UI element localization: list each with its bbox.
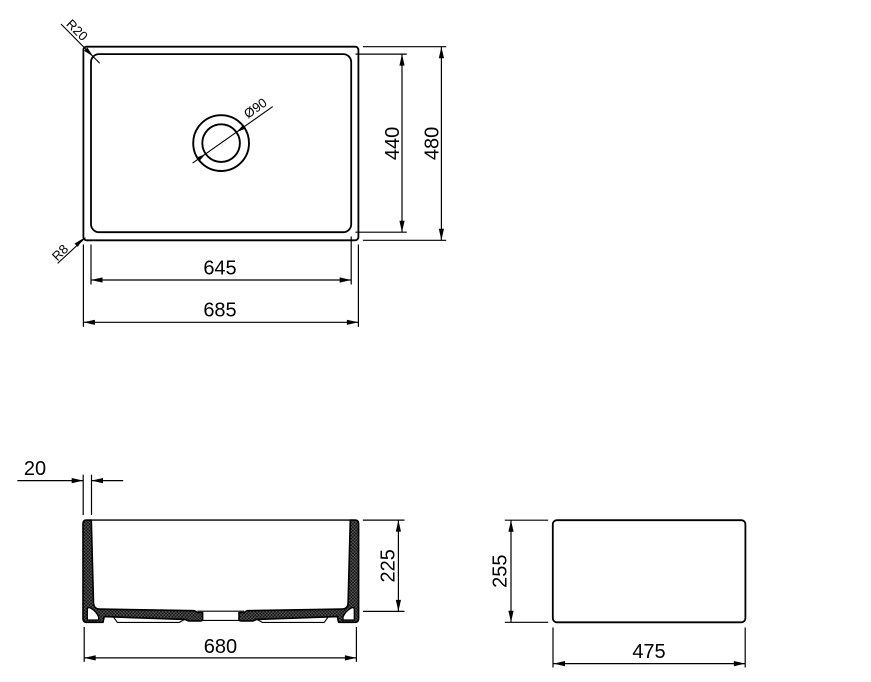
svg-text:685: 685	[203, 300, 236, 322]
svg-text:R20: R20	[63, 16, 90, 43]
svg-text:R8: R8	[49, 241, 71, 263]
svg-text:225: 225	[378, 549, 400, 582]
svg-text:475: 475	[632, 641, 665, 663]
svg-text:255: 255	[489, 555, 511, 588]
svg-text:480: 480	[422, 127, 444, 160]
svg-text:645: 645	[203, 257, 236, 279]
svg-text:20: 20	[24, 458, 46, 480]
svg-text:680: 680	[204, 636, 237, 658]
svg-text:440: 440	[382, 127, 404, 160]
